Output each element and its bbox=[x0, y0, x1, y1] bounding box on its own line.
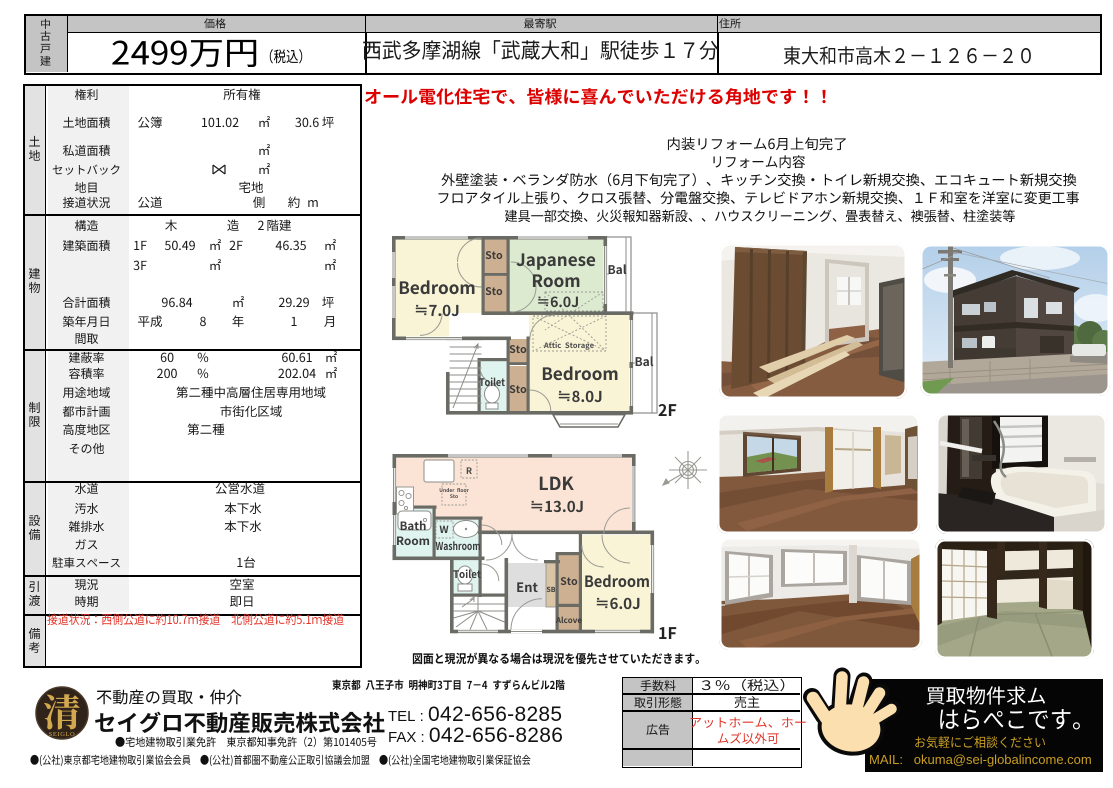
svg-text:SEIGLO: SEIGLO bbox=[49, 731, 76, 738]
